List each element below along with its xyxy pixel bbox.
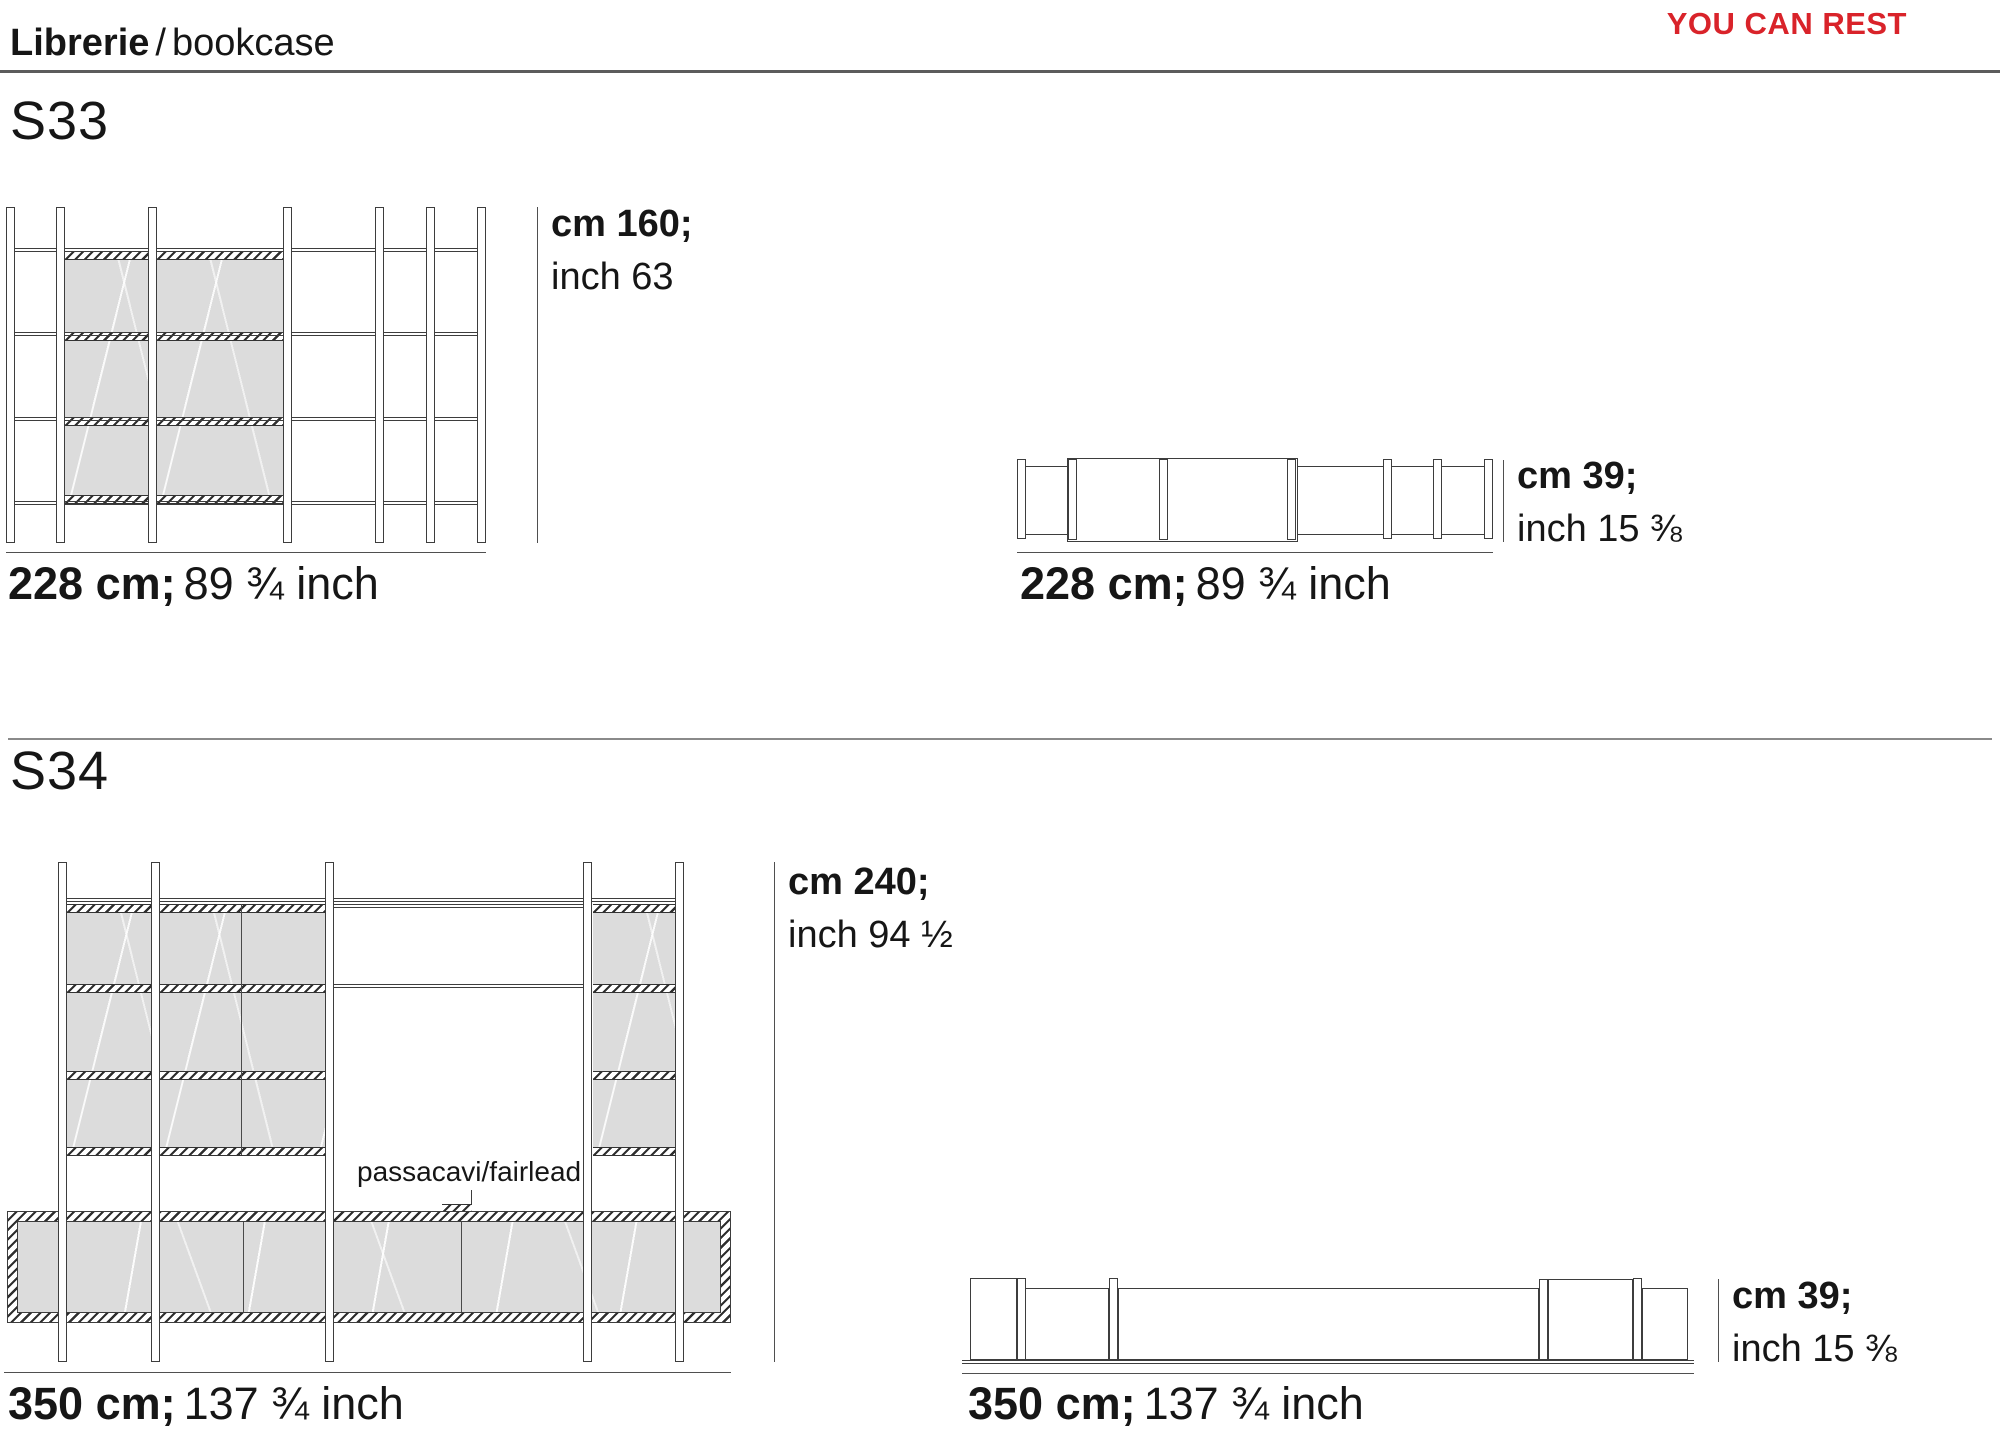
width-inch: 89 ¾ inch [1196,558,1391,609]
title-english: bookcase [172,22,335,64]
plan-cabinet-box [1067,458,1298,542]
plan-post [1109,1278,1118,1360]
upright-post [6,207,15,543]
back-panel [160,904,325,1155]
base-cabinet [7,1211,731,1323]
model-code-s33: S33 [10,90,109,152]
plinth-line [962,1360,1694,1364]
width-dimension-line [1017,552,1493,553]
s33-top-width-label: 228 cm;89 ¾ inch [1020,558,1391,610]
width-dimension-line [4,1372,731,1373]
plan-cabinet-box [1548,1279,1633,1360]
upright-post [151,862,160,1362]
height-cm: cm 160; [551,198,693,251]
back-panel [67,904,151,1155]
width-dimension-line [962,1373,1694,1374]
upright-post [325,862,334,1362]
upright-post [583,862,592,1362]
shelf-hatch [160,904,325,913]
width-cm: 228 cm; [1020,558,1188,609]
plan-post [1287,459,1296,540]
back-panel [593,904,675,1155]
s33-front-height-label: cm 160; inch 63 [551,198,693,304]
width-cm: 350 cm; [8,1378,176,1429]
page-title: Librerie/bookcase [10,22,335,65]
shelf-hatch [157,251,283,260]
upright-post [148,207,157,543]
plan-end-cap [1017,459,1026,539]
s34-top-width-label: 350 cm;137 ¾ inch [968,1378,1364,1430]
catalog-page: Librerie/bookcase YOU CAN REST S33 [0,0,2000,1434]
back-panel [157,251,283,504]
shelf-line [334,904,583,908]
plan-post [1159,459,1168,540]
model-code-s34: S34 [10,740,109,802]
plan-post [1433,459,1442,539]
width-dimension-line [6,552,486,553]
s33-depth-label: cm 39; inch 15 ⅜ [1517,450,1682,556]
shelf-hatch [67,984,151,993]
plan-cabinet-box [1118,1288,1539,1360]
cabinet-divider [461,1222,462,1312]
s34-front-width-label: 350 cm;137 ¾ inch [8,1378,404,1430]
title-italian: Librerie [10,22,149,64]
s34-front-elevation [7,862,731,1362]
upright-post [375,207,384,543]
plan-post [1633,1278,1642,1360]
height-dimension-line [774,862,775,1362]
upright-post [477,207,486,543]
shelf-line [6,501,486,505]
s33-front-elevation [6,207,486,543]
panel-divider [241,904,242,1155]
upright-post [283,207,292,543]
width-cm: 228 cm; [8,558,176,609]
s33-front-width-label: 228 cm;89 ¾ inch [8,558,379,610]
section-divider [8,738,1992,740]
depth-inch: inch 15 ⅜ [1732,1323,1897,1376]
title-separator: / [149,22,172,64]
shelf-hatch [160,984,325,993]
plan-cabinet-box [1025,1288,1109,1360]
plan-cabinet-box [970,1278,1017,1360]
brand-tagline: YOU CAN REST [1667,6,1907,42]
depth-cm: cm 39; [1517,450,1682,503]
plan-end-cap [1484,459,1493,539]
depth-dimension-line [1503,460,1504,542]
upright-post [56,207,65,543]
depth-inch: inch 15 ⅜ [1517,503,1682,556]
upright-post [58,862,67,1362]
width-inch: 89 ¾ inch [184,558,379,609]
shelf-hatch [67,1147,151,1156]
shelf-hatch [160,1147,325,1156]
shelf-hatch [67,904,151,913]
shelf-line [6,248,486,252]
width-cm: 350 cm; [968,1378,1136,1429]
shelf-line [6,417,486,421]
shelf-hatch [593,1071,675,1080]
shelf-hatch [67,1071,151,1080]
width-inch: 137 ¾ inch [184,1378,404,1429]
fairlead-leader-line [471,1190,472,1204]
depth-cm: cm 39; [1732,1270,1897,1323]
base-cabinet-panel [17,1221,721,1313]
shelf-line [334,984,583,988]
plan-post [1068,459,1077,540]
plan-cabinet-box [1642,1288,1688,1360]
cabinet-divider [243,1222,244,1312]
s34-depth-label: cm 39; inch 15 ⅜ [1732,1270,1897,1376]
height-inch: inch 63 [551,251,693,304]
header-divider [0,70,2000,73]
upright-post [675,862,684,1362]
shelf-hatch [593,904,675,913]
shelf-hatch [593,984,675,993]
shelf-hatch [593,1147,675,1156]
width-inch: 137 ¾ inch [1144,1378,1364,1429]
plan-post [1539,1279,1548,1360]
s34-top-view [962,1278,1694,1374]
s33-top-view [1017,457,1493,548]
shelf-hatch [160,1071,325,1080]
height-cm: cm 240; [788,856,953,909]
s34-front-height-label: cm 240; inch 94 ½ [788,856,953,962]
plan-post [1383,459,1392,539]
shelf-hatch [65,251,148,260]
back-panel [65,251,148,504]
height-inch: inch 94 ½ [788,909,953,962]
depth-dimension-line [1718,1279,1719,1362]
shelf-line [6,332,486,336]
height-dimension-line [537,207,538,543]
upright-post [426,207,435,543]
